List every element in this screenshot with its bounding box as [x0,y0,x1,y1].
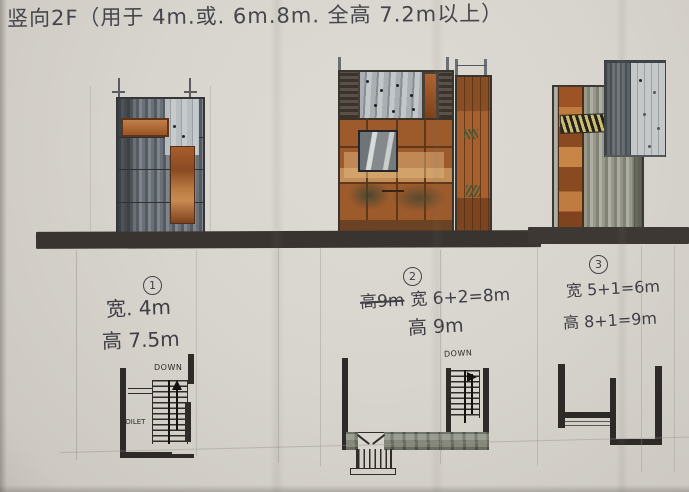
rail-line [128,393,152,394]
window-line [565,425,615,426]
floor-plan-1: DOWN TOILET [118,352,202,464]
brick-hatch [340,72,358,118]
floor-plan-2: DOWN [342,350,490,474]
door-swing-line [357,434,370,444]
stair-divider [464,370,466,423]
annotation-2-height: 高 9m [408,317,465,339]
annotation-2-width-value: 宽 6+2=8m [410,285,511,310]
gray-curtain-panel [358,130,398,172]
elevation-2 [338,57,490,232]
orange-band [121,118,169,137]
wall [172,454,194,458]
orange-strip [170,146,195,224]
arrow-up-icon [172,380,182,390]
stair-icon [451,370,480,418]
fixing-dot-icon [639,79,642,82]
annotation-1-height: 高 7.5m [102,329,180,352]
stair-base-plate [350,468,396,475]
annotation-1-width: 宽. 4m [106,297,172,319]
stair-divider [168,380,170,444]
exterior-stair-icon [356,449,392,469]
elevation-1-facade [116,97,205,236]
ground-band [36,230,541,249]
wall [610,378,616,444]
sketch-photo: 竖向2F（用于 4m.或. 6m.8m. 全高 7.2m以上） [0,0,689,492]
orange-strip [425,74,436,118]
struck-text: 高9m [360,291,405,313]
annotation-3-height: 高 8+1=9m [563,311,658,332]
top-band [340,72,452,118]
survey-post-icon [455,59,458,75]
elevation-2-main-bay [338,70,454,234]
guide-line [320,248,321,466]
plant-silhouette-icon [348,180,390,210]
arrow-line [176,388,178,430]
light-screen [631,63,665,155]
guide-line [76,250,77,460]
plant-mark-icon [464,129,478,139]
guide-line [278,248,279,463]
guide-line [537,246,538,466]
photo-edge-shadow [0,485,689,492]
down-label: DOWN [154,364,182,372]
orange-strip [558,87,584,230]
zebra-planting-band [560,113,610,134]
guide-line [196,250,197,456]
wall [483,368,489,436]
down-label: DOWN [444,349,473,358]
elevation-2-right-bay [455,75,492,234]
guide-line [210,86,211,231]
wall [655,366,662,445]
window-line [565,421,615,422]
wall [120,368,126,454]
slat-dot-icon [366,80,369,83]
arrow-down-icon [467,372,477,382]
rail-line [456,65,487,66]
door-opening [358,432,384,450]
page-title: 竖向2F（用于 4m.或. 6m.8m. 全高 7.2m以上） [7,3,503,29]
elevation-3 [552,60,664,230]
survey-tick-icon [112,91,125,93]
guide-line [674,246,675,472]
panel-bottom-edge [605,155,665,157]
guide-line [440,250,441,464]
gray-slats [360,72,422,118]
door-swing-line [372,434,385,444]
plant-silhouette-icon [392,184,446,212]
stair-icon [152,380,188,444]
toilet-label: TOILET [121,419,145,426]
annotation-3-width: 宽 5+1=6m [566,279,661,300]
wall [558,364,565,428]
elevation-1 [116,78,202,232]
photo-edge-shadow [0,0,7,492]
ground-band-right [528,227,689,244]
circled-number-3: 3 [589,255,608,274]
survey-post-icon [484,59,487,75]
wall [188,354,194,384]
circled-number-1: 1 [143,276,162,295]
survey-tick-icon [184,91,197,93]
rail-line [128,388,152,389]
dark-drape [605,63,631,155]
wall [120,452,172,458]
guide-line [90,86,91,231]
brick-hatch [439,72,452,118]
wall [558,412,615,418]
plant-mark-icon [466,185,480,197]
elevation-3-tall-panel [604,60,666,157]
fixing-dot-icon [173,125,176,128]
circled-number-2: 2 [403,267,422,286]
table-mark [382,190,404,192]
annotation-2-width: 高9m宽 6+2=8m [360,287,511,312]
